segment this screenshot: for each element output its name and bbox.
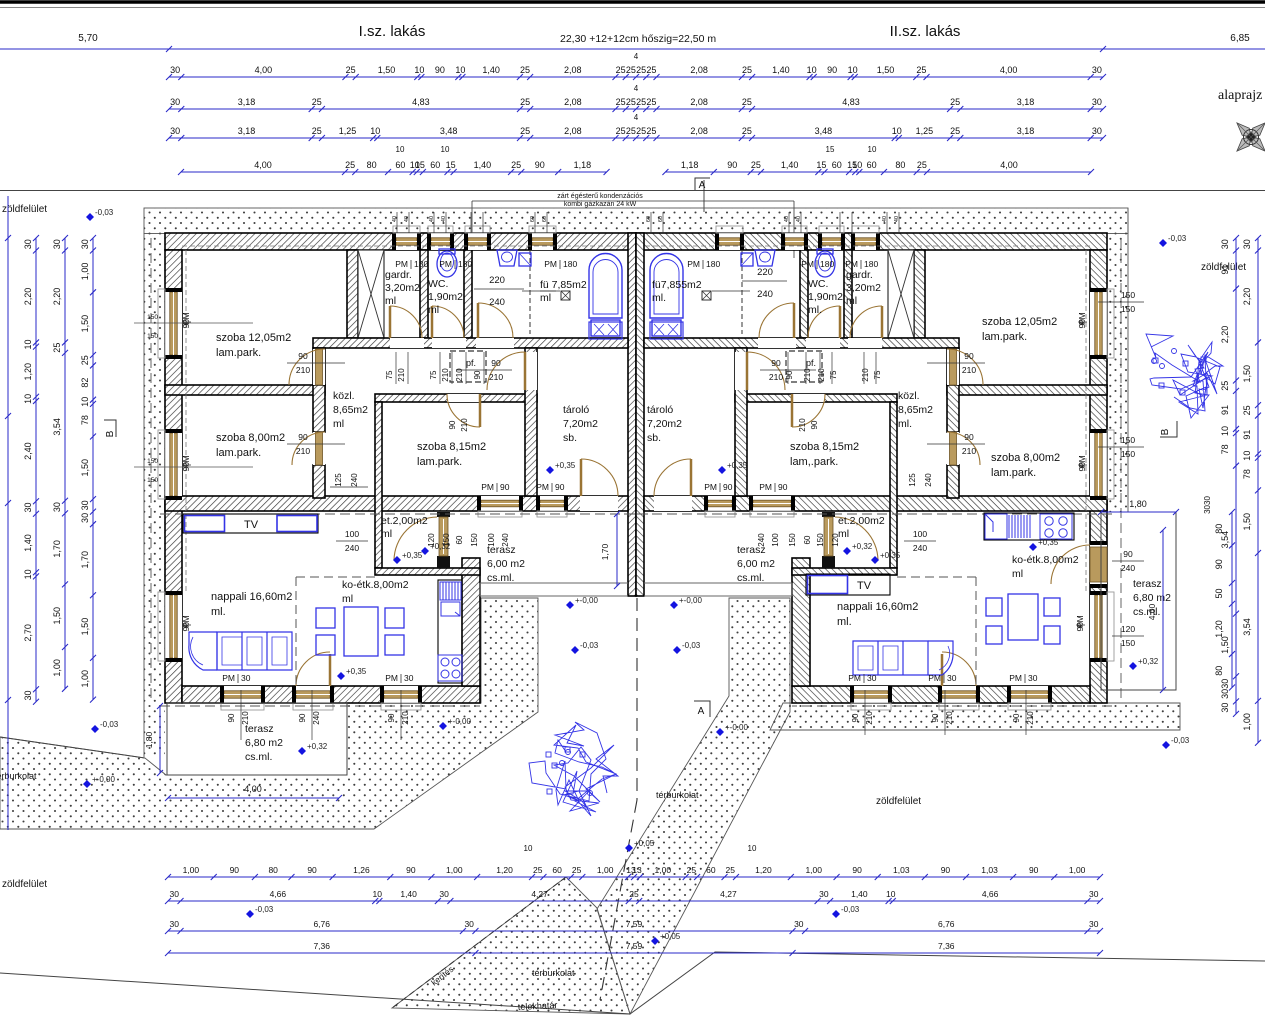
svg-text:210: 210 (1026, 711, 1035, 725)
svg-text:40: 40 (441, 216, 447, 222)
svg-text:90: 90 (1012, 713, 1021, 722)
svg-text:210: 210 (945, 711, 954, 725)
svg-text:10: 10 (1220, 426, 1230, 436)
svg-text:szoba 12,05m2: szoba 12,05m2 (982, 316, 1057, 328)
svg-text:25: 25 (636, 126, 646, 136)
svg-text:szoba 8,00m2: szoba 8,00m2 (216, 432, 285, 444)
svg-text:210: 210 (397, 368, 406, 382)
svg-text:PM: PM (481, 482, 494, 492)
svg-text:90: 90 (1077, 319, 1087, 329)
svg-text:25: 25 (520, 97, 530, 107)
svg-text:30: 30 (1092, 126, 1102, 136)
svg-text:90: 90 (473, 370, 482, 379)
svg-text:210: 210 (296, 365, 310, 375)
svg-text:75: 75 (385, 370, 394, 379)
svg-text:210: 210 (817, 368, 826, 382)
svg-text:4: 4 (634, 84, 639, 93)
svg-text:6,00 m2: 6,00 m2 (737, 558, 775, 570)
svg-text:220: 220 (489, 275, 505, 286)
svg-text:240: 240 (501, 533, 510, 547)
svg-text:40: 40 (429, 216, 435, 222)
svg-text:90: 90 (181, 622, 191, 632)
svg-text:-0,03: -0,03 (255, 905, 274, 914)
svg-text:-0,03: -0,03 (1168, 234, 1187, 243)
svg-text:100: 100 (913, 529, 927, 539)
svg-text:15: 15 (826, 145, 835, 154)
svg-text:75: 75 (429, 370, 438, 379)
svg-text:150: 150 (1121, 638, 1135, 648)
svg-text:10: 10 (852, 160, 862, 170)
svg-text:80: 80 (1214, 666, 1224, 676)
svg-text:10: 10 (524, 844, 533, 853)
svg-text:91: 91 (1220, 405, 1230, 415)
svg-text:1,50: 1,50 (80, 459, 90, 477)
svg-text:ml: ml (342, 593, 353, 605)
svg-text:WC.: WC. (428, 278, 448, 290)
svg-text:lam,.park.: lam,.park. (790, 456, 838, 468)
svg-text:cs.ml.: cs.ml. (245, 751, 272, 763)
svg-text:6,80 m2: 6,80 m2 (245, 737, 283, 749)
svg-text:1,70: 1,70 (600, 543, 610, 560)
svg-text:-0,03: -0,03 (841, 905, 860, 914)
svg-text:90: 90 (1075, 622, 1085, 632)
svg-text:30: 30 (1028, 673, 1038, 683)
svg-text:25: 25 (616, 97, 626, 107)
svg-text:6,76: 6,76 (938, 919, 955, 929)
svg-text:90: 90 (555, 482, 565, 492)
svg-text:210: 210 (962, 446, 976, 456)
svg-text:ko-étk.8,00m2: ko-étk.8,00m2 (1012, 554, 1079, 566)
svg-text:80: 80 (268, 865, 278, 875)
svg-text:25: 25 (616, 126, 626, 136)
svg-text:4,00: 4,00 (1000, 65, 1018, 75)
svg-text:30: 30 (52, 502, 62, 512)
svg-text:+0,05: +0,05 (660, 932, 681, 941)
svg-text:+-0,00: +-0,00 (575, 596, 598, 605)
svg-text:3,48: 3,48 (440, 126, 458, 136)
svg-text:60: 60 (867, 160, 877, 170)
svg-text:30: 30 (23, 239, 33, 249)
svg-text:240: 240 (757, 533, 766, 547)
svg-text:60: 60 (706, 865, 716, 875)
svg-text:90: 90 (771, 358, 781, 368)
svg-text:25: 25 (1242, 405, 1252, 415)
svg-text:60: 60 (658, 216, 664, 222)
svg-text:10: 10 (23, 569, 33, 579)
svg-text:82: 82 (80, 378, 90, 388)
svg-text:210: 210 (962, 365, 976, 375)
svg-text:15: 15 (816, 160, 826, 170)
svg-text:2,20: 2,20 (23, 288, 33, 306)
svg-text:PM: PM (544, 259, 557, 269)
svg-text:1,00: 1,00 (446, 865, 463, 875)
svg-text:30: 30 (170, 65, 180, 75)
svg-text:telekhatár: telekhatár (518, 1000, 558, 1012)
svg-text:7,59: 7,59 (626, 941, 643, 951)
svg-text:25: 25 (533, 865, 543, 875)
svg-text:1,50: 1,50 (877, 65, 895, 75)
svg-text:10: 10 (80, 397, 90, 407)
svg-text:25: 25 (616, 65, 626, 75)
svg-text:pf.: pf. (466, 358, 476, 368)
svg-text:1,18: 1,18 (681, 160, 699, 170)
svg-text:30: 30 (439, 889, 449, 899)
svg-text:90: 90 (435, 65, 445, 75)
svg-text:lam.park.: lam.park. (982, 331, 1027, 343)
svg-text:210: 210 (441, 368, 450, 382)
svg-text:90: 90 (491, 358, 501, 368)
svg-text:25: 25 (916, 65, 926, 75)
svg-text:B: B (1160, 428, 1171, 435)
svg-text:1,70: 1,70 (80, 551, 90, 569)
svg-text:78: 78 (1242, 469, 1252, 479)
svg-text:10: 10 (370, 126, 380, 136)
svg-text:1,40: 1,40 (781, 160, 799, 170)
svg-text:1,90m2: 1,90m2 (808, 291, 843, 303)
svg-text:4,66: 4,66 (982, 889, 999, 899)
svg-text:+0,35: +0,35 (880, 551, 901, 560)
svg-text:1,70: 1,70 (52, 540, 62, 558)
svg-text:1,50: 1,50 (52, 607, 62, 625)
svg-text:PM: PM (848, 673, 861, 683)
svg-text:40: 40 (392, 216, 398, 222)
svg-text:+-0,00: +-0,00 (679, 596, 702, 605)
svg-text:150: 150 (470, 533, 479, 547)
svg-text:125: 125 (334, 473, 343, 487)
svg-text:1,40: 1,40 (482, 65, 500, 75)
svg-text:2,08: 2,08 (564, 65, 582, 75)
svg-text:100: 100 (487, 533, 496, 547)
svg-text:180: 180 (820, 259, 834, 269)
svg-text:6,80 m2: 6,80 m2 (1133, 592, 1171, 604)
svg-text:1,00: 1,00 (1069, 865, 1086, 875)
svg-text:1,20: 1,20 (23, 363, 33, 381)
svg-text:22,30 +12+12cm hőszig=22,50 m: 22,30 +12+12cm hőszig=22,50 m (560, 33, 716, 45)
svg-text:150: 150 (1121, 304, 1135, 314)
svg-text:90: 90 (298, 432, 308, 442)
svg-text:25: 25 (629, 889, 639, 899)
svg-text:10: 10 (807, 65, 817, 75)
svg-text:4,83: 4,83 (842, 97, 860, 107)
svg-text:25: 25 (751, 160, 761, 170)
svg-text:PM: PM (222, 673, 235, 683)
svg-text:7,20m2: 7,20m2 (563, 418, 598, 430)
svg-text:zöldfelület: zöldfelület (2, 879, 47, 890)
svg-text:25: 25 (687, 865, 697, 875)
svg-text:90: 90 (964, 432, 974, 442)
svg-text:40: 40 (404, 216, 410, 222)
svg-text:210: 210 (460, 418, 469, 432)
svg-text:60: 60 (803, 535, 812, 544)
svg-text:78: 78 (80, 415, 90, 425)
svg-text:6,85: 6,85 (1230, 33, 1250, 44)
svg-text:210: 210 (401, 711, 410, 725)
svg-text:60: 60 (455, 535, 464, 544)
svg-text:25: 25 (520, 126, 530, 136)
svg-text:tároló: tároló (563, 404, 589, 416)
svg-text:90: 90 (723, 482, 733, 492)
svg-text:30: 30 (23, 690, 33, 700)
svg-text:90: 90 (1123, 549, 1133, 559)
svg-text:közl.: közl. (333, 390, 355, 402)
svg-text:1,50: 1,50 (378, 65, 396, 75)
svg-text:+0,32: +0,32 (1138, 657, 1159, 666)
svg-text:1,18: 1,18 (574, 160, 592, 170)
svg-text:1,00: 1,00 (597, 865, 614, 875)
svg-text:3,18: 3,18 (1017, 97, 1035, 107)
svg-text:7,20m2: 7,20m2 (647, 418, 682, 430)
svg-text:30: 30 (464, 919, 474, 929)
svg-text:25: 25 (636, 97, 646, 107)
svg-text:10: 10 (886, 889, 896, 899)
svg-text:cs.ml.: cs.ml. (487, 572, 514, 584)
svg-text:1,50: 1,50 (80, 315, 90, 333)
svg-text:3,54: 3,54 (1242, 618, 1252, 636)
svg-text:kombi gázkazán 24 kW: kombi gázkazán 24 kW (564, 201, 637, 208)
svg-text:60: 60 (832, 160, 842, 170)
svg-text:ml: ml (540, 292, 551, 304)
svg-text:4,00: 4,00 (255, 65, 273, 75)
svg-text:1,26: 1,26 (353, 865, 370, 875)
svg-text:30: 30 (170, 919, 180, 929)
svg-text:90: 90 (851, 713, 860, 722)
svg-text:6,76: 6,76 (313, 919, 330, 929)
svg-text:25: 25 (646, 126, 656, 136)
svg-text:1,40: 1,40 (474, 160, 492, 170)
svg-text:PM: PM (439, 259, 452, 269)
svg-text:30: 30 (404, 673, 414, 683)
svg-text:terasz: terasz (1133, 578, 1162, 590)
svg-text:2,08: 2,08 (690, 126, 708, 136)
svg-text:3,20m2: 3,20m2 (846, 282, 881, 294)
svg-text:2,20: 2,20 (1242, 288, 1252, 306)
svg-text:25: 25 (572, 865, 582, 875)
svg-text:3030: 3030 (1203, 496, 1212, 514)
svg-text:7,59: 7,59 (626, 919, 643, 929)
svg-text:1,25: 1,25 (339, 126, 357, 136)
svg-text:ml.: ml. (837, 616, 852, 628)
svg-text:210: 210 (241, 711, 250, 725)
svg-text:nappali 16,60m2: nappali 16,60m2 (211, 591, 292, 603)
svg-text:100: 100 (771, 533, 780, 547)
svg-text:90: 90 (227, 713, 236, 722)
svg-text:150: 150 (147, 314, 158, 321)
svg-text:3,20m2: 3,20m2 (385, 282, 420, 294)
svg-text:4,27: 4,27 (531, 889, 548, 899)
svg-text:90: 90 (298, 713, 307, 722)
svg-text:2,40: 2,40 (23, 442, 33, 460)
svg-text:15: 15 (415, 160, 425, 170)
svg-text:-0,03: -0,03 (1171, 736, 1190, 745)
svg-text:30: 30 (1089, 889, 1099, 899)
svg-text:30: 30 (1220, 239, 1230, 249)
svg-text:10: 10 (441, 145, 450, 154)
svg-text:90: 90 (778, 482, 788, 492)
svg-text:PM: PM (928, 673, 941, 683)
svg-text:ml.: ml. (898, 418, 912, 430)
svg-text:1,00: 1,00 (52, 659, 62, 677)
svg-text:A: A (699, 180, 706, 191)
svg-text:1,00: 1,00 (655, 865, 672, 875)
svg-text:WC.: WC. (808, 278, 828, 290)
svg-text:+-0,00: +-0,00 (725, 723, 748, 732)
svg-text:120: 120 (1121, 624, 1135, 634)
svg-text:30: 30 (170, 126, 180, 136)
svg-text:40: 40 (784, 216, 790, 222)
svg-text:240: 240 (350, 473, 359, 487)
svg-text:1,50: 1,50 (1242, 513, 1252, 531)
svg-text:10: 10 (396, 145, 405, 154)
svg-text:PM: PM (845, 259, 858, 269)
svg-text:15: 15 (446, 160, 456, 170)
svg-text:10: 10 (373, 889, 383, 899)
svg-text:25: 25 (626, 65, 636, 75)
svg-text:gardr.: gardr. (385, 269, 412, 281)
svg-text:4: 4 (634, 113, 639, 122)
svg-text:lam.park.: lam.park. (216, 447, 261, 459)
svg-text:1,00: 1,00 (183, 865, 200, 875)
svg-text:fü 7,85m2: fü 7,85m2 (540, 279, 587, 291)
svg-text:60: 60 (395, 160, 405, 170)
svg-text:3,48: 3,48 (815, 126, 833, 136)
svg-text:150: 150 (1121, 435, 1135, 445)
svg-text:4,27: 4,27 (720, 889, 737, 899)
svg-text:6,00 m2: 6,00 m2 (487, 558, 525, 570)
svg-text:25: 25 (80, 355, 90, 365)
svg-text:150: 150 (788, 533, 797, 547)
svg-text:8,65m2: 8,65m2 (333, 404, 368, 416)
svg-text:180: 180 (563, 259, 577, 269)
svg-text:4,00: 4,00 (1147, 603, 1157, 620)
svg-text:+0,32: +0,32 (430, 542, 451, 551)
svg-text:10: 10 (1242, 451, 1252, 461)
svg-text:1,20: 1,20 (1214, 620, 1224, 638)
svg-text:60: 60 (530, 216, 536, 222)
svg-text:180: 180 (458, 259, 472, 269)
svg-text:25: 25 (646, 65, 656, 75)
svg-text:alaprajz: alaprajz (1218, 88, 1262, 103)
svg-text:30: 30 (170, 97, 180, 107)
svg-text:lam.park.: lam.park. (991, 467, 1036, 479)
svg-text:30: 30 (819, 889, 829, 899)
svg-text:közl.: közl. (898, 390, 920, 402)
svg-text:PM: PM (759, 482, 772, 492)
svg-text:50: 50 (1214, 588, 1224, 598)
svg-text:30: 30 (1092, 65, 1102, 75)
svg-text:+0,35: +0,35 (346, 667, 367, 676)
svg-text:PM: PM (687, 259, 700, 269)
svg-text:1,40: 1,40 (851, 889, 868, 899)
svg-text:1,40: 1,40 (23, 534, 33, 552)
svg-text:210: 210 (803, 368, 812, 382)
svg-text:25: 25 (346, 65, 356, 75)
svg-text:7,36: 7,36 (938, 941, 955, 951)
svg-text:13: 13 (632, 865, 642, 875)
svg-text:210: 210 (769, 372, 783, 382)
svg-text:ko-étk.8,00m2: ko-étk.8,00m2 (342, 579, 409, 591)
svg-text:78: 78 (1220, 444, 1230, 454)
svg-text:25: 25 (742, 97, 752, 107)
svg-text:1,03: 1,03 (981, 865, 998, 875)
svg-text:30: 30 (170, 889, 180, 899)
svg-text:térburkolat: térburkolat (532, 968, 575, 978)
svg-text:4,00: 4,00 (254, 160, 272, 170)
svg-text:-0,03: -0,03 (100, 720, 119, 729)
svg-text:90: 90 (406, 865, 416, 875)
svg-text:zöldfelület: zöldfelület (2, 204, 47, 215)
svg-text:ml: ml (333, 418, 344, 430)
svg-text:25: 25 (742, 126, 752, 136)
svg-text:2,20: 2,20 (52, 288, 62, 306)
svg-text:25: 25 (950, 126, 960, 136)
svg-text:240: 240 (913, 543, 927, 553)
svg-text:II.sz. lakás: II.sz. lakás (890, 23, 961, 40)
svg-text:90: 90 (785, 370, 794, 379)
svg-text:1,20: 1,20 (755, 865, 772, 875)
svg-text:91: 91 (1220, 265, 1230, 275)
svg-text:25: 25 (726, 865, 736, 875)
svg-text:40: 40 (894, 216, 900, 222)
svg-text:-0,03: -0,03 (682, 641, 701, 650)
svg-text:PM: PM (536, 482, 549, 492)
svg-text:TV: TV (244, 519, 259, 531)
svg-text:25: 25 (917, 160, 927, 170)
svg-text:90: 90 (931, 713, 940, 722)
svg-text:240: 240 (312, 711, 321, 725)
svg-text:90: 90 (1214, 559, 1224, 569)
svg-text:30: 30 (80, 513, 90, 523)
svg-text:210: 210 (865, 711, 874, 725)
svg-text:4,00: 4,00 (244, 784, 262, 794)
svg-text:40: 40 (796, 216, 802, 222)
svg-text:125: 125 (908, 473, 917, 487)
svg-text:3030: 3030 (1220, 679, 1230, 699)
svg-text:90: 90 (810, 420, 819, 429)
svg-text:lam.park.: lam.park. (216, 347, 261, 359)
svg-text:7,36: 7,36 (313, 941, 330, 951)
svg-text:gardr.: gardr. (846, 269, 873, 281)
svg-text:szoba 12,05m2: szoba 12,05m2 (216, 332, 291, 344)
svg-text:PM: PM (395, 259, 408, 269)
svg-text:tároló: tároló (647, 404, 673, 416)
svg-text:80: 80 (367, 160, 377, 170)
svg-text:210: 210 (296, 446, 310, 456)
svg-text:PM: PM (1009, 673, 1022, 683)
svg-text:10: 10 (414, 65, 424, 75)
svg-text:fü7,855m2: fü7,855m2 (652, 279, 702, 291)
svg-text:25: 25 (312, 126, 322, 136)
svg-text:25: 25 (742, 65, 752, 75)
svg-text:240: 240 (489, 297, 505, 308)
svg-text:zárt égésterű kondenzációs: zárt égésterű kondenzációs (557, 193, 643, 200)
svg-text:pf.: pf. (806, 358, 816, 368)
svg-text:2,08: 2,08 (690, 65, 708, 75)
svg-text:1,00: 1,00 (1242, 713, 1252, 731)
svg-text:80: 80 (1214, 524, 1224, 534)
svg-text:sb.: sb. (647, 432, 661, 444)
svg-text:1,80: 1,80 (1129, 499, 1147, 509)
svg-text:60: 60 (646, 216, 652, 222)
svg-text:100: 100 (345, 529, 359, 539)
svg-text:1,40: 1,40 (400, 889, 417, 899)
svg-text:25: 25 (345, 160, 355, 170)
svg-text:3,18: 3,18 (238, 97, 256, 107)
svg-text:90: 90 (941, 865, 951, 875)
svg-text:2,20: 2,20 (1220, 326, 1230, 344)
svg-text:75: 75 (873, 370, 882, 379)
svg-text:91: 91 (1242, 430, 1252, 440)
svg-text:90: 90 (964, 351, 974, 361)
